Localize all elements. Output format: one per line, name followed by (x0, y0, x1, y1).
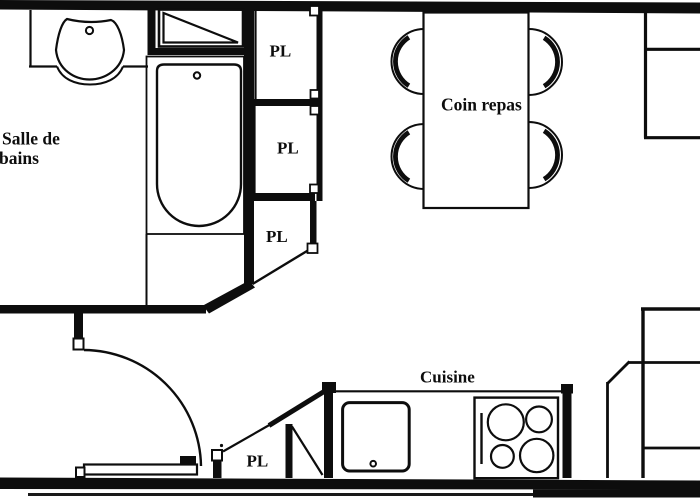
svg-text:PL: PL (266, 227, 288, 246)
svg-text:PL: PL (277, 139, 299, 158)
svg-text:Coin repas: Coin repas (441, 95, 522, 115)
svg-text:bains: bains (0, 148, 39, 168)
svg-text:PL: PL (247, 452, 269, 471)
svg-text:Cuisine: Cuisine (420, 368, 475, 387)
svg-text:PL: PL (270, 42, 292, 61)
svg-text:Salle de: Salle de (2, 129, 60, 149)
